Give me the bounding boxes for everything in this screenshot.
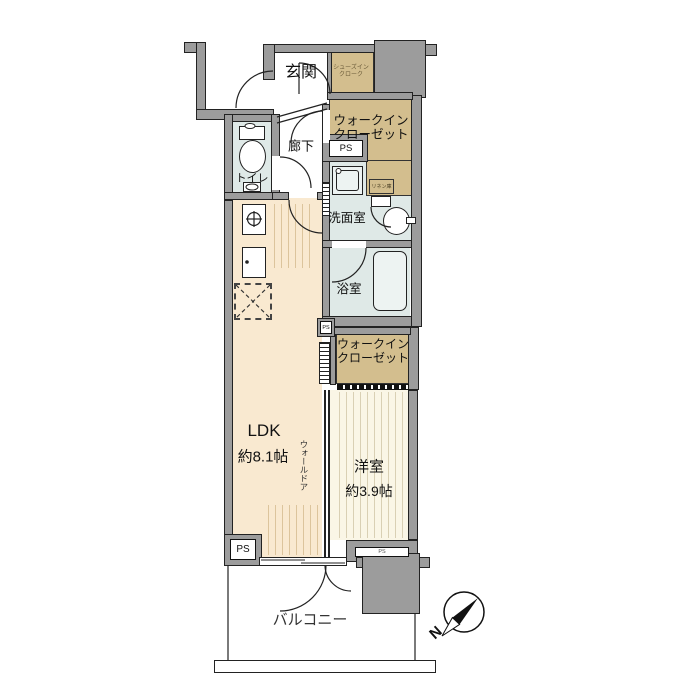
room-label-balcony: バルコニー xyxy=(273,611,348,628)
wic-upper-line1: ウォークイン xyxy=(333,114,408,128)
kitchen-stove-fixture xyxy=(242,204,266,235)
room-label-toilet: トイレ xyxy=(236,173,269,186)
ldk-western-partition xyxy=(324,390,330,557)
wall-door-label: ウォールドア xyxy=(298,440,308,491)
door-arc-toilet xyxy=(280,157,311,188)
compass-needle-north xyxy=(452,598,478,624)
wall-right-mid xyxy=(408,327,419,390)
floorplan: PS PS PS PS リネン庫 xyxy=(0,0,700,700)
wic-lower-line1: ウォークイン xyxy=(337,338,409,352)
door-gap-wic xyxy=(323,110,330,143)
linen-closet-box: リネン庫 xyxy=(369,179,394,194)
ps-upper-label: PS xyxy=(340,143,353,154)
kitchen-cabinet-fixture xyxy=(242,247,266,278)
room-size-ldk: 約8.1帖 xyxy=(238,448,289,465)
room-label-corridor: 廊下 xyxy=(288,140,314,155)
wic-lower-door-track xyxy=(337,384,409,390)
wall-right-lower xyxy=(408,390,418,540)
shoes-cloak-line1: シューズイン xyxy=(333,65,369,72)
room-label-bath: 浴室 xyxy=(336,282,361,296)
wall-genkan-left xyxy=(263,44,275,80)
room-label-western: 洋室 xyxy=(354,458,384,475)
door-arc-balcony-left xyxy=(280,565,326,611)
washing-machine-drum xyxy=(336,170,359,191)
shoes-cloak-line2: クローク xyxy=(333,72,369,79)
entrance-step-line-1 xyxy=(277,103,327,117)
wall-block-bottomright xyxy=(362,553,420,614)
ps-middle-label: PS xyxy=(322,325,329,331)
door-gap-bath xyxy=(332,241,366,248)
room-label-shoes-cloak: シューズイン クローク xyxy=(333,65,369,79)
ps-box-middle: PS xyxy=(320,321,332,334)
wic-lower-line2: クローゼット xyxy=(337,352,409,366)
ps-bottom-right-label: PS xyxy=(378,549,385,555)
wall-corridor-ldk-left xyxy=(272,192,289,200)
wall-bath-bottom xyxy=(322,316,412,327)
ps-box-bottom-left: PS xyxy=(230,539,256,560)
ps-bottom-left-label: PS xyxy=(236,544,249,555)
wic-upper-line2: クローゼット xyxy=(333,128,408,142)
wall-wic-top xyxy=(327,92,413,100)
wall-tab-br-left xyxy=(356,557,363,568)
room-label-washroom: 洗面室 xyxy=(328,211,366,225)
compass-icon xyxy=(444,592,484,632)
room-label-wic-upper: ウォークイン クローゼット xyxy=(333,114,408,143)
entrance-step-line-2 xyxy=(277,109,327,123)
toilet-tank-fixture xyxy=(239,126,265,140)
wall-block-topright xyxy=(374,40,426,98)
ps-box-bottom-right: PS xyxy=(355,547,409,557)
toilet-bowl-fixture xyxy=(239,140,266,173)
wall-wic-lower-top xyxy=(327,327,411,335)
compass-needle-south xyxy=(442,618,460,636)
room-label-wic-lower: ウォークイン クローゼット xyxy=(337,338,409,366)
wall-left-toilet xyxy=(224,114,233,200)
room-size-western: 約3.9帖 xyxy=(345,483,392,499)
wall-genkan-top xyxy=(263,44,377,53)
compass-north-label: N xyxy=(426,623,446,643)
wall-genkan-right xyxy=(327,52,332,96)
linen-label: リネン庫 xyxy=(371,183,391,190)
wall-tab-topright xyxy=(425,44,437,56)
sink-faucet xyxy=(406,217,416,224)
bathtub-fixture xyxy=(373,251,407,311)
room-label-ldk: LDK xyxy=(247,421,280,441)
refrigerator-space xyxy=(234,283,272,320)
wall-left-ldk xyxy=(224,200,233,560)
linen-door-leaf xyxy=(371,196,391,207)
door-gap-toilet xyxy=(272,156,280,190)
floor-hatch-ldk-top xyxy=(268,204,314,268)
door-arc-balcony-right xyxy=(325,565,351,591)
ps-box-upper: PS xyxy=(329,140,363,157)
room-label-genkan: 玄関 xyxy=(285,64,317,82)
wall-right-upper xyxy=(411,95,422,327)
balcony-door-sill xyxy=(259,557,347,566)
balcony-outer-rail xyxy=(214,660,436,673)
wic-folding-door xyxy=(319,342,330,384)
floor-hatch-ldk-bottom xyxy=(262,505,320,555)
wall-wic-lower-left xyxy=(330,335,336,385)
wall-tab-br-right xyxy=(419,557,430,568)
